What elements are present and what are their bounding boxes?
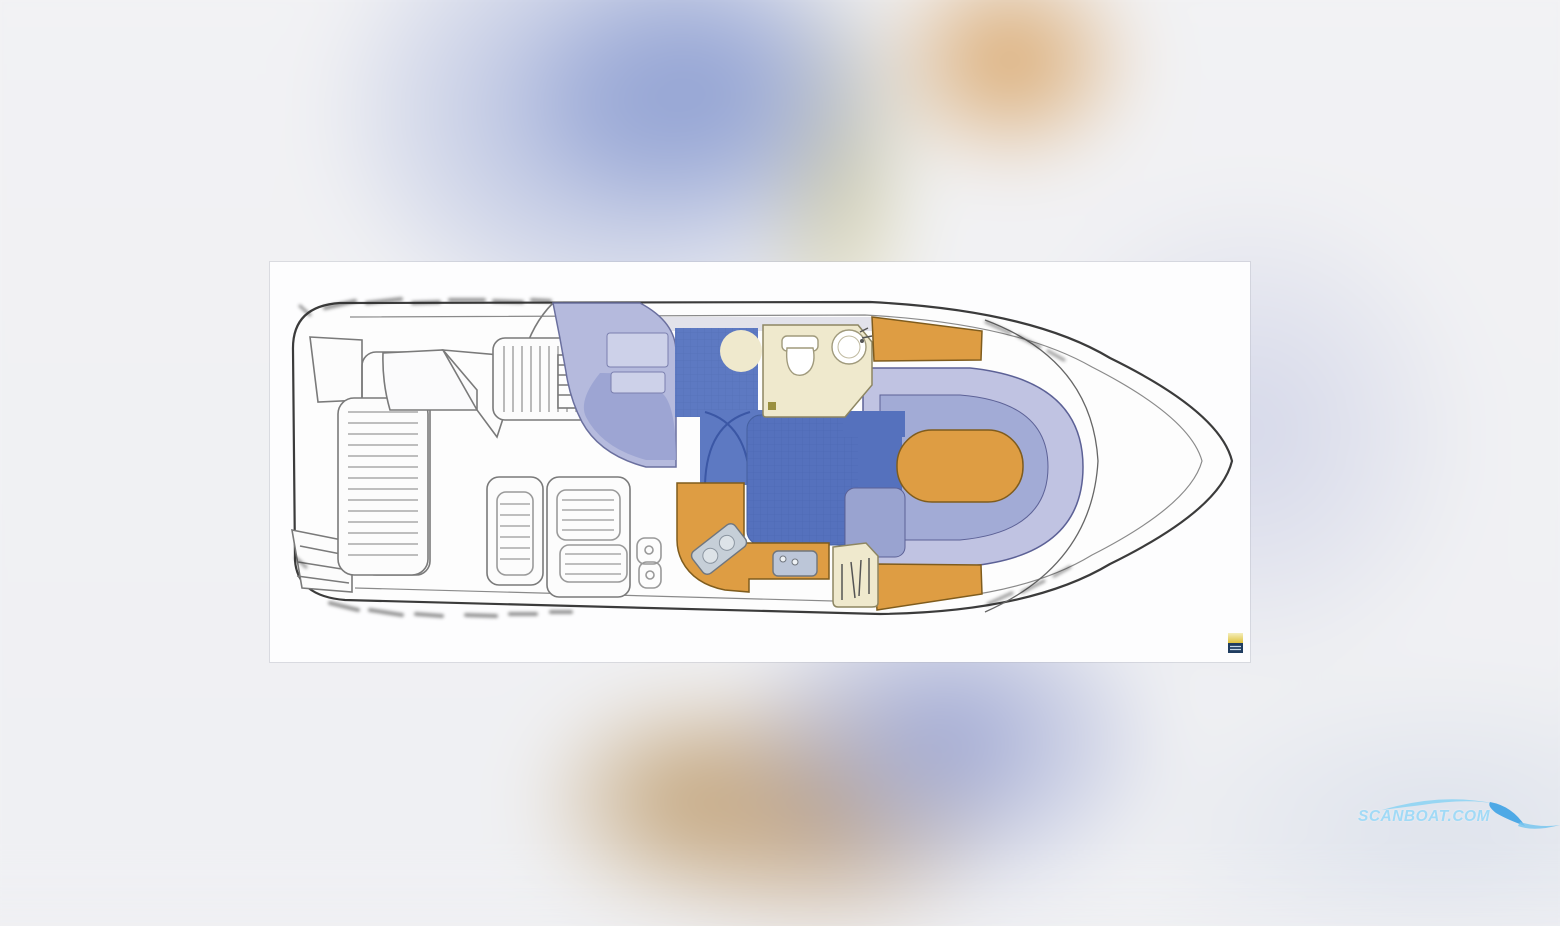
scanboat-watermark: SCANBOAT.COM (1348, 788, 1560, 846)
engine-hatch-sunpad (338, 398, 428, 575)
companionway-step (607, 333, 668, 367)
swim-platform (310, 337, 362, 402)
galley-sink (773, 551, 817, 576)
companionway-step (611, 372, 665, 393)
cockpit-bench-port (487, 477, 543, 585)
door-hinge (768, 402, 776, 410)
cockpit-bench-starboard (547, 477, 630, 597)
brand-mark-icon (1228, 633, 1243, 653)
boat-floorplan-diagram (270, 262, 1250, 662)
wardrobe-locker (833, 543, 878, 607)
watermark-text: SCANBOAT.COM (1358, 808, 1490, 826)
head-door-arc (720, 330, 762, 372)
head-compartment (763, 325, 872, 417)
floorplan-panel (270, 262, 1250, 662)
bow-table (897, 430, 1023, 502)
